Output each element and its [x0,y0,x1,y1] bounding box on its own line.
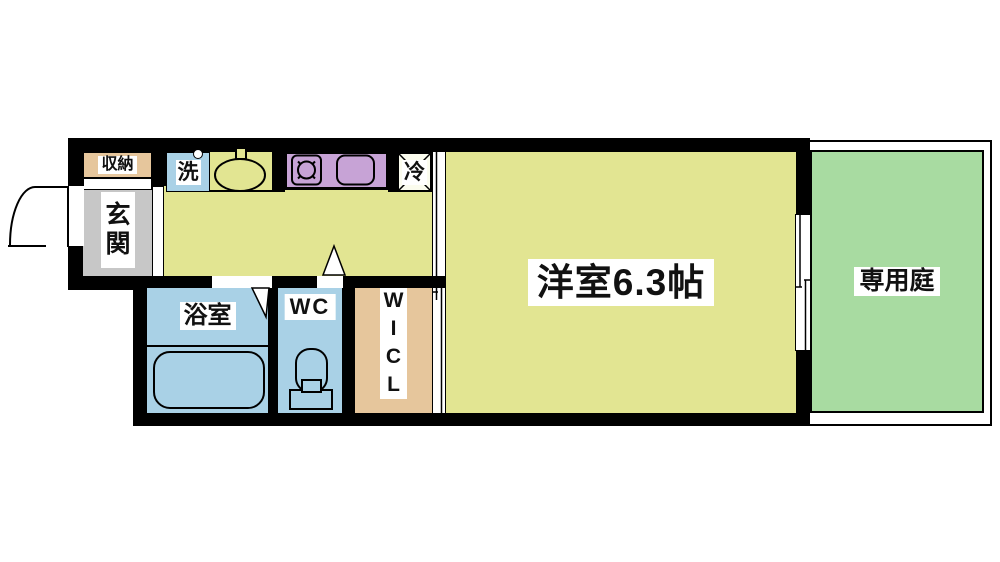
washbasin-icon [210,146,272,194]
refrigerator-label: 冷 [402,160,427,185]
entrance-label: 玄 関 [101,192,135,268]
kitchen-counter [285,152,388,190]
kitchen-fixtures-icon [287,154,386,187]
refrigerator-space: 冷 [397,152,432,192]
wc-label: WC [285,294,336,320]
wall [342,288,355,413]
wc-door-swing-icon [320,244,348,278]
bathroom-label: 浴室 [180,302,236,330]
wicl-label: W I C L [380,287,407,399]
floorplan-canvas: 専用庭 洋室6.3帖 収納 洗 冷 [0,0,1000,562]
storage-label: 収納 [98,156,136,174]
entrance-label-char: 関 [105,230,130,260]
washing-machine-space: 洗 [166,152,210,192]
wall [133,276,212,288]
wall [152,138,166,186]
wall [388,138,397,192]
wall [272,276,317,288]
stove-burner-icon [292,156,321,185]
bathtub-icon [151,349,267,411]
room-private-garden: 専用庭 [810,150,984,413]
bathroom-divider-line [147,345,268,347]
entrance-door-swing-icon [2,180,87,255]
western-room-label: 洋室6.3帖 [528,259,714,306]
storage-sliding-door-icon [83,178,152,190]
toilet-icon [287,347,335,411]
wicl-letter: L [387,373,400,397]
kitchen-sink-icon [337,156,374,185]
wall [343,276,446,288]
wall [133,413,810,426]
sliding-window-icon [795,214,811,351]
wall [272,138,285,192]
wall [133,276,147,426]
entrance-step-strip [152,186,164,277]
room-western-room: 洋室6.3帖 [446,152,796,413]
faucet-icon [193,149,203,159]
wall [68,138,810,152]
garden-label: 専用庭 [854,267,939,296]
room-storage: 収納 [83,152,152,178]
wicl-letter: I [391,317,397,341]
entrance-label-char: 玄 [105,201,130,231]
bathroom-door-swing-icon [248,286,272,320]
wicl-letter: C [386,345,401,369]
wicl-letter: W [384,289,404,313]
laundry-label: 洗 [176,160,201,185]
